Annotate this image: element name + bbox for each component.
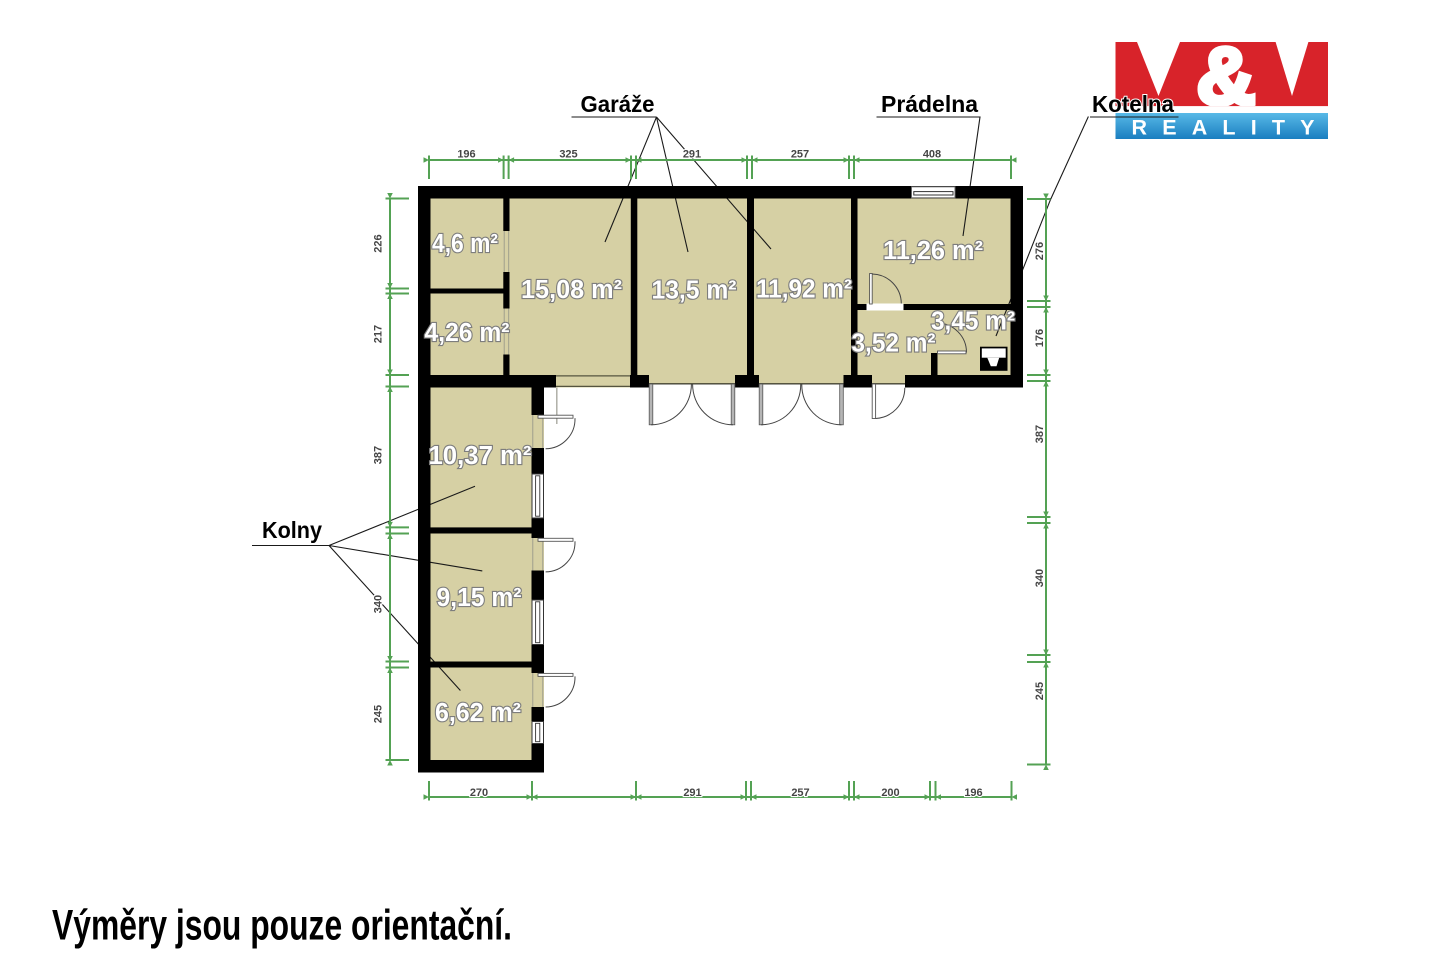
svg-text:3,45 m²: 3,45 m² [931, 308, 1015, 336]
svg-text:3,52 m²: 3,52 m² [852, 330, 936, 358]
svg-text:340: 340 [1034, 569, 1046, 587]
svg-text:257: 257 [791, 149, 809, 161]
svg-text:291: 291 [683, 149, 701, 161]
svg-text:270: 270 [470, 787, 488, 799]
svg-text:408: 408 [923, 149, 941, 161]
svg-text:6,62 m²: 6,62 m² [435, 699, 521, 727]
svg-text:387: 387 [373, 446, 385, 464]
svg-text:291: 291 [683, 787, 701, 799]
svg-text:245: 245 [373, 705, 385, 723]
svg-text:257: 257 [791, 787, 809, 799]
svg-text:245: 245 [1034, 682, 1046, 700]
svg-text:200: 200 [881, 787, 899, 799]
svg-text:325: 325 [559, 149, 577, 161]
svg-text:13,5 m²: 13,5 m² [652, 277, 737, 305]
svg-text:Výměry jsou pouze orientační.: Výměry jsou pouze orientační. [52, 902, 512, 950]
svg-text:387: 387 [1034, 425, 1046, 443]
svg-text:196: 196 [964, 787, 982, 799]
svg-text:276: 276 [1034, 242, 1046, 260]
svg-text:Prádelna: Prádelna [881, 91, 978, 117]
svg-text:9,15 m²: 9,15 m² [437, 584, 522, 612]
svg-text:4,26 m²: 4,26 m² [425, 319, 510, 347]
svg-text:Kolny: Kolny [262, 517, 322, 543]
svg-text:340: 340 [373, 595, 385, 613]
svg-text:Garáže: Garáže [581, 91, 655, 117]
svg-text:11,26 m²: 11,26 m² [883, 237, 983, 265]
svg-text:15,08 m²: 15,08 m² [521, 276, 622, 304]
svg-text:196: 196 [457, 149, 475, 161]
svg-text:4,6 m²: 4,6 m² [432, 230, 498, 258]
svg-text:11,92 m²: 11,92 m² [756, 276, 852, 304]
svg-text:176: 176 [1034, 329, 1046, 347]
svg-text:Kotelna: Kotelna [1092, 91, 1174, 117]
svg-text:226: 226 [373, 234, 385, 252]
svg-text:10,37 m²: 10,37 m² [429, 442, 532, 470]
svg-text:217: 217 [373, 325, 385, 343]
